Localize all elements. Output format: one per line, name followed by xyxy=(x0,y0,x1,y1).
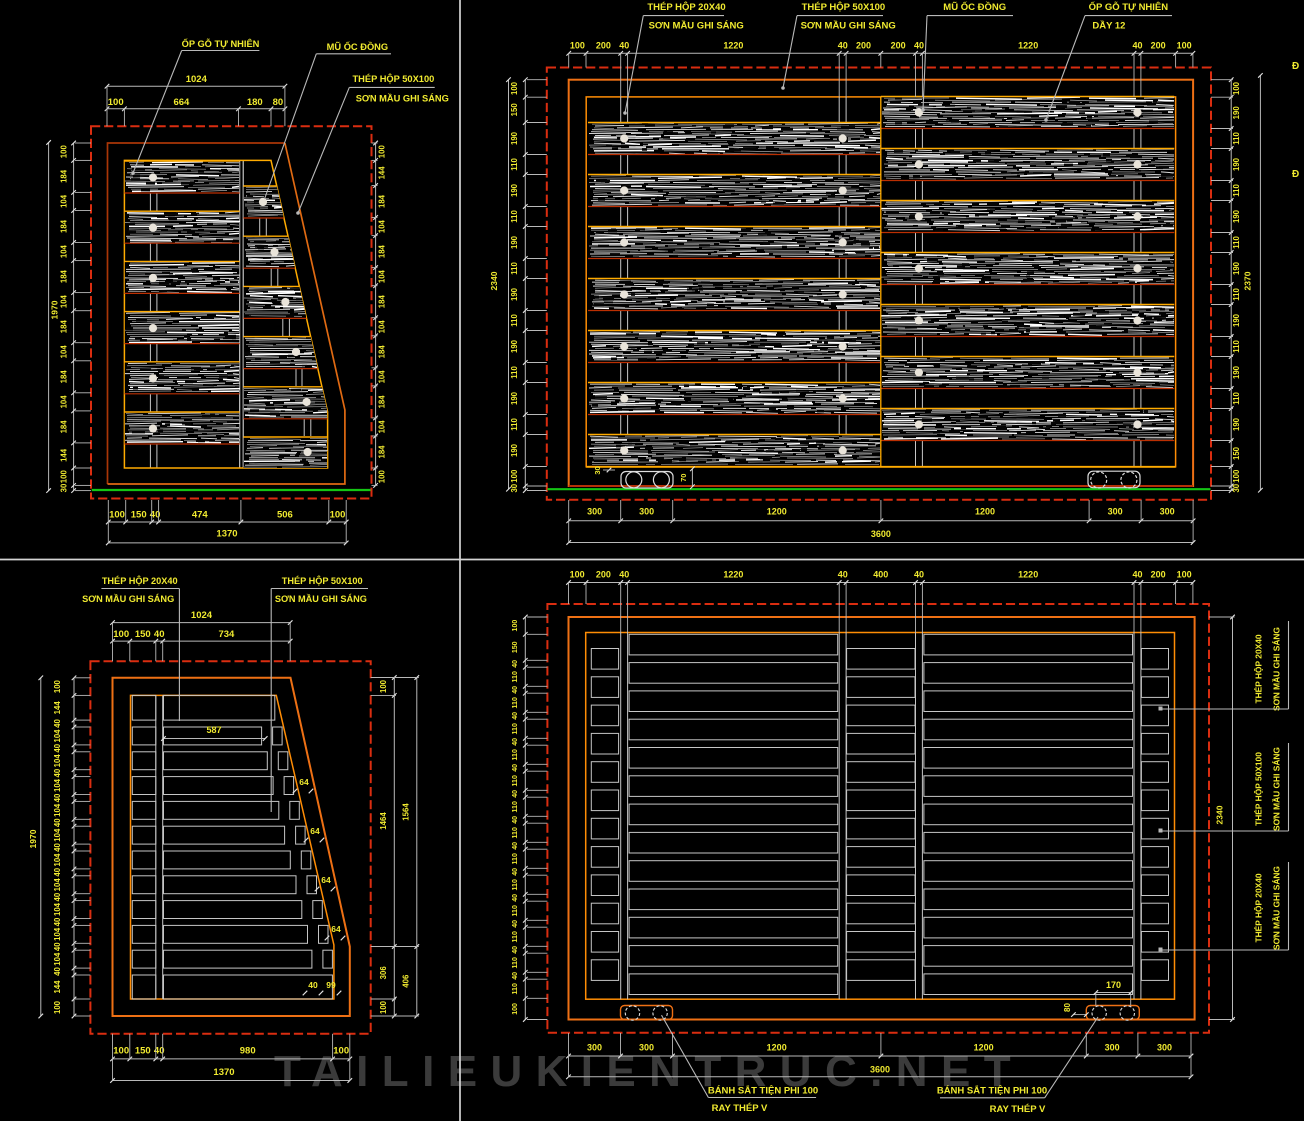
svg-text:104: 104 xyxy=(53,778,62,792)
svg-text:100: 100 xyxy=(379,1000,388,1014)
svg-text:40: 40 xyxy=(512,790,519,798)
svg-text:100: 100 xyxy=(53,1000,62,1014)
svg-text:180: 180 xyxy=(247,97,263,108)
svg-text:SƠN MẦU GHI SÁNG: SƠN MẦU GHI SÁNG xyxy=(801,21,896,32)
svg-text:100: 100 xyxy=(378,145,387,159)
svg-text:100: 100 xyxy=(1232,469,1241,483)
svg-text:RAY THÉP V: RAY THÉP V xyxy=(712,1103,768,1114)
svg-text:110: 110 xyxy=(1232,392,1241,405)
svg-text:40: 40 xyxy=(512,738,519,746)
svg-text:40: 40 xyxy=(512,660,519,668)
svg-text:104: 104 xyxy=(60,345,69,359)
svg-text:184: 184 xyxy=(378,395,387,409)
svg-text:THÉP HỘP 20X40: THÉP HỘP 20X40 xyxy=(1253,634,1264,703)
svg-text:2340: 2340 xyxy=(1215,805,1225,824)
svg-text:64: 64 xyxy=(331,924,341,934)
svg-text:Đ: Đ xyxy=(1292,61,1299,72)
svg-text:THÉP HỘP 50X100: THÉP HỘP 50X100 xyxy=(282,575,363,586)
svg-text:100: 100 xyxy=(60,145,69,159)
svg-text:150: 150 xyxy=(135,629,151,640)
svg-text:SƠN MẦU GHI SÁNG: SƠN MẦU GHI SÁNG xyxy=(1271,866,1282,950)
svg-text:110: 110 xyxy=(510,314,519,327)
svg-text:3600: 3600 xyxy=(870,1065,890,1075)
svg-text:184: 184 xyxy=(60,269,69,283)
svg-text:MŨ ỐC ĐỒNG: MŨ ỐC ĐỒNG xyxy=(943,1,1006,13)
svg-text:104: 104 xyxy=(60,194,69,208)
svg-text:100: 100 xyxy=(108,97,124,108)
svg-text:1200: 1200 xyxy=(974,1043,994,1053)
svg-text:104: 104 xyxy=(53,828,62,842)
svg-text:40: 40 xyxy=(512,764,519,772)
svg-text:734: 734 xyxy=(218,629,235,640)
svg-text:200: 200 xyxy=(1151,41,1166,51)
svg-text:104: 104 xyxy=(378,219,387,233)
svg-text:80: 80 xyxy=(273,97,284,108)
svg-text:40: 40 xyxy=(53,867,62,876)
svg-text:150: 150 xyxy=(510,103,519,117)
svg-text:ỐP GỖ TỰ NHIÊN: ỐP GỖ TỰ NHIÊN xyxy=(1089,1,1169,13)
svg-text:40: 40 xyxy=(308,980,318,990)
svg-text:110: 110 xyxy=(512,671,519,682)
svg-text:1200: 1200 xyxy=(767,1043,787,1053)
svg-text:SƠN MẦU GHI SÁNG: SƠN MẦU GHI SÁNG xyxy=(275,593,367,604)
svg-text:40: 40 xyxy=(154,629,165,640)
svg-text:190: 190 xyxy=(1232,417,1241,431)
svg-text:184: 184 xyxy=(60,169,69,183)
svg-text:144: 144 xyxy=(378,166,387,180)
svg-text:THÉP HỘP 20X40: THÉP HỘP 20X40 xyxy=(647,1,725,13)
svg-text:300: 300 xyxy=(639,1043,654,1053)
svg-text:1464: 1464 xyxy=(379,812,388,830)
svg-text:1024: 1024 xyxy=(191,610,213,621)
svg-text:664: 664 xyxy=(173,97,190,108)
svg-text:110: 110 xyxy=(512,723,519,734)
svg-text:40: 40 xyxy=(619,41,629,51)
svg-text:40: 40 xyxy=(512,920,519,928)
svg-text:150: 150 xyxy=(131,510,147,521)
svg-text:300: 300 xyxy=(1108,507,1123,517)
svg-text:406: 406 xyxy=(402,974,411,988)
svg-text:110: 110 xyxy=(512,697,519,708)
svg-text:100: 100 xyxy=(379,679,388,693)
svg-text:104: 104 xyxy=(378,320,387,334)
svg-text:110: 110 xyxy=(512,957,519,968)
svg-text:110: 110 xyxy=(1232,340,1241,353)
svg-text:40: 40 xyxy=(53,743,62,752)
svg-text:104: 104 xyxy=(53,754,62,768)
svg-text:Đ: Đ xyxy=(1292,169,1299,180)
svg-text:40: 40 xyxy=(53,967,62,976)
svg-text:110: 110 xyxy=(1232,184,1241,197)
svg-text:110: 110 xyxy=(512,827,519,838)
svg-text:THÉP HỘP 50X100: THÉP HỘP 50X100 xyxy=(1253,752,1264,826)
svg-text:40: 40 xyxy=(53,892,62,901)
svg-text:980: 980 xyxy=(240,1046,256,1057)
svg-text:BÁNH SẮT TIỆN PHI 100: BÁNH SẮT TIỆN PHI 100 xyxy=(937,1085,1047,1097)
svg-text:110: 110 xyxy=(510,262,519,275)
svg-text:110: 110 xyxy=(512,801,519,812)
svg-text:306: 306 xyxy=(379,966,388,980)
svg-text:40: 40 xyxy=(914,570,924,580)
svg-text:190: 190 xyxy=(1232,313,1241,327)
svg-text:184: 184 xyxy=(60,219,69,233)
svg-text:100: 100 xyxy=(510,81,519,95)
svg-text:190: 190 xyxy=(510,443,519,457)
svg-text:144: 144 xyxy=(53,980,62,994)
svg-text:40: 40 xyxy=(53,793,62,802)
svg-text:200: 200 xyxy=(891,41,906,51)
svg-text:40: 40 xyxy=(838,570,848,580)
svg-text:104: 104 xyxy=(378,370,387,384)
svg-text:1564: 1564 xyxy=(402,803,411,821)
svg-text:150: 150 xyxy=(135,1046,151,1057)
svg-text:110: 110 xyxy=(1232,236,1241,249)
svg-text:144: 144 xyxy=(60,448,69,462)
svg-text:80: 80 xyxy=(1063,1003,1072,1012)
svg-text:190: 190 xyxy=(1232,365,1241,379)
svg-text:40: 40 xyxy=(619,570,629,580)
svg-text:300: 300 xyxy=(587,507,602,517)
svg-text:100: 100 xyxy=(113,629,129,640)
svg-text:104: 104 xyxy=(60,395,69,409)
svg-text:104: 104 xyxy=(378,269,387,283)
svg-text:100: 100 xyxy=(53,679,62,693)
svg-text:40: 40 xyxy=(53,719,62,728)
svg-text:104: 104 xyxy=(53,803,62,817)
svg-text:110: 110 xyxy=(512,775,519,786)
svg-text:1970: 1970 xyxy=(50,300,60,319)
svg-text:170: 170 xyxy=(1106,980,1121,990)
svg-text:110: 110 xyxy=(1232,132,1241,145)
svg-text:100: 100 xyxy=(113,1046,129,1057)
svg-text:104: 104 xyxy=(60,244,69,258)
svg-text:400: 400 xyxy=(873,570,888,580)
svg-text:40: 40 xyxy=(512,972,519,980)
svg-text:190: 190 xyxy=(510,235,519,249)
svg-text:506: 506 xyxy=(277,510,293,521)
svg-text:184: 184 xyxy=(60,420,69,434)
svg-text:MŨ ỐC ĐỒNG: MŨ ỐC ĐỒNG xyxy=(327,41,388,52)
svg-text:200: 200 xyxy=(1151,570,1166,580)
svg-text:184: 184 xyxy=(60,370,69,384)
svg-text:190: 190 xyxy=(510,131,519,145)
svg-text:30: 30 xyxy=(60,483,69,492)
svg-text:300: 300 xyxy=(1160,507,1175,517)
svg-text:30: 30 xyxy=(1232,483,1241,492)
svg-text:110: 110 xyxy=(512,879,519,890)
svg-text:110: 110 xyxy=(1232,288,1241,301)
svg-text:184: 184 xyxy=(378,445,387,459)
svg-text:1220: 1220 xyxy=(1018,570,1038,580)
svg-text:40: 40 xyxy=(53,942,62,951)
svg-text:100: 100 xyxy=(570,41,585,51)
svg-text:184: 184 xyxy=(378,345,387,359)
svg-text:190: 190 xyxy=(1232,157,1241,171)
svg-text:104: 104 xyxy=(60,294,69,308)
svg-text:30: 30 xyxy=(593,466,602,474)
svg-text:100: 100 xyxy=(570,570,585,580)
svg-text:104: 104 xyxy=(53,853,62,867)
svg-text:RAY THÉP V: RAY THÉP V xyxy=(990,1104,1046,1115)
svg-text:200: 200 xyxy=(856,41,871,51)
svg-text:110: 110 xyxy=(512,931,519,942)
svg-text:64: 64 xyxy=(310,826,320,836)
svg-text:144: 144 xyxy=(53,701,62,715)
svg-text:190: 190 xyxy=(510,183,519,197)
svg-text:1220: 1220 xyxy=(1018,41,1038,51)
svg-text:40: 40 xyxy=(512,816,519,824)
svg-text:474: 474 xyxy=(192,510,209,521)
svg-text:2340: 2340 xyxy=(489,271,499,290)
svg-text:200: 200 xyxy=(596,41,611,51)
svg-text:100: 100 xyxy=(1232,81,1241,95)
svg-text:587: 587 xyxy=(206,725,221,735)
svg-text:100: 100 xyxy=(60,470,69,484)
svg-text:40: 40 xyxy=(914,41,924,51)
svg-text:100: 100 xyxy=(109,510,125,521)
svg-text:100: 100 xyxy=(510,469,519,483)
svg-text:2370: 2370 xyxy=(1243,271,1253,290)
svg-text:104: 104 xyxy=(53,952,62,966)
svg-text:40: 40 xyxy=(512,842,519,850)
svg-text:1220: 1220 xyxy=(723,570,743,580)
svg-text:1970: 1970 xyxy=(28,829,38,848)
svg-text:300: 300 xyxy=(1105,1043,1120,1053)
svg-text:110: 110 xyxy=(512,853,519,864)
svg-text:300: 300 xyxy=(587,1043,602,1053)
svg-text:104: 104 xyxy=(53,927,62,941)
svg-text:100: 100 xyxy=(378,470,387,484)
svg-text:THÉP HỘP 20X40: THÉP HỘP 20X40 xyxy=(1253,873,1264,942)
svg-text:40: 40 xyxy=(1132,41,1142,51)
svg-text:110: 110 xyxy=(510,418,519,431)
svg-text:200: 200 xyxy=(596,570,611,580)
svg-text:40: 40 xyxy=(512,686,519,694)
svg-text:150: 150 xyxy=(1232,446,1241,460)
svg-text:64: 64 xyxy=(321,875,331,885)
svg-text:64: 64 xyxy=(299,777,309,787)
svg-text:40: 40 xyxy=(53,768,62,777)
svg-text:300: 300 xyxy=(639,507,654,517)
svg-text:THÉP HỘP 50X100: THÉP HỘP 50X100 xyxy=(802,1,886,13)
svg-text:190: 190 xyxy=(1232,106,1241,120)
svg-text:SƠN MẦU GHI SÁNG: SƠN MẦU GHI SÁNG xyxy=(649,21,744,32)
svg-text:110: 110 xyxy=(510,366,519,379)
svg-text:SƠN MẦU GHI SÁNG: SƠN MẦU GHI SÁNG xyxy=(1271,627,1282,711)
svg-text:190: 190 xyxy=(1232,209,1241,223)
svg-text:40: 40 xyxy=(512,946,519,954)
svg-text:40: 40 xyxy=(512,894,519,902)
svg-text:184: 184 xyxy=(378,244,387,258)
svg-text:190: 190 xyxy=(510,287,519,301)
svg-text:100: 100 xyxy=(1177,41,1192,51)
svg-text:DẦY 12: DẦY 12 xyxy=(1092,21,1125,32)
svg-text:110: 110 xyxy=(512,983,519,994)
svg-text:BÁNH SẮT TIỆN PHI 100: BÁNH SẮT TIỆN PHI 100 xyxy=(708,1085,818,1097)
svg-text:1370: 1370 xyxy=(216,529,237,540)
svg-text:110: 110 xyxy=(510,158,519,171)
svg-text:110: 110 xyxy=(510,210,519,223)
svg-text:110: 110 xyxy=(512,905,519,916)
svg-text:100: 100 xyxy=(330,510,346,521)
svg-text:150: 150 xyxy=(512,641,519,653)
svg-text:190: 190 xyxy=(510,391,519,405)
svg-text:190: 190 xyxy=(510,339,519,353)
svg-text:40: 40 xyxy=(512,868,519,876)
svg-text:104: 104 xyxy=(53,729,62,743)
svg-text:184: 184 xyxy=(60,320,69,334)
svg-text:40: 40 xyxy=(53,843,62,852)
svg-text:1220: 1220 xyxy=(723,41,743,51)
svg-text:30: 30 xyxy=(510,483,519,492)
svg-text:SƠN MẦU GHI SÁNG: SƠN MẦU GHI SÁNG xyxy=(356,94,449,104)
svg-text:100: 100 xyxy=(1177,570,1192,580)
svg-text:1200: 1200 xyxy=(767,507,787,517)
svg-text:100: 100 xyxy=(512,1003,519,1015)
svg-text:THÉP HỘP 20X40: THÉP HỘP 20X40 xyxy=(102,575,178,586)
svg-text:SƠN MẦU GHI SÁNG: SƠN MẦU GHI SÁNG xyxy=(82,593,174,604)
svg-text:3600: 3600 xyxy=(871,529,891,539)
svg-text:190: 190 xyxy=(1232,261,1241,275)
svg-text:184: 184 xyxy=(378,194,387,208)
svg-text:ỐP GỖ TỰ NHIÊN: ỐP GỖ TỰ NHIÊN xyxy=(182,38,260,49)
svg-text:40: 40 xyxy=(53,818,62,827)
svg-text:SƠN MẦU GHI SÁNG: SƠN MẦU GHI SÁNG xyxy=(1271,747,1282,831)
svg-text:100: 100 xyxy=(512,620,519,632)
svg-text:184: 184 xyxy=(378,295,387,309)
svg-text:104: 104 xyxy=(53,902,62,916)
svg-text:40: 40 xyxy=(512,712,519,720)
svg-text:70: 70 xyxy=(679,474,688,482)
svg-text:40: 40 xyxy=(838,41,848,51)
svg-text:TAILIEUKIENTRUC.NET: TAILIEUKIENTRUC.NET xyxy=(274,1047,1024,1096)
svg-text:99: 99 xyxy=(326,980,336,990)
svg-text:40: 40 xyxy=(1132,570,1142,580)
svg-text:110: 110 xyxy=(512,749,519,760)
svg-text:40: 40 xyxy=(53,917,62,926)
svg-text:1200: 1200 xyxy=(975,507,995,517)
svg-text:1370: 1370 xyxy=(213,1067,234,1078)
svg-text:1024: 1024 xyxy=(186,74,208,85)
svg-text:THÉP HỘP 50X100: THÉP HỘP 50X100 xyxy=(352,73,434,84)
svg-text:104: 104 xyxy=(53,878,62,892)
svg-text:300: 300 xyxy=(1157,1043,1172,1053)
svg-text:104: 104 xyxy=(378,420,387,434)
svg-text:100: 100 xyxy=(333,1046,349,1057)
